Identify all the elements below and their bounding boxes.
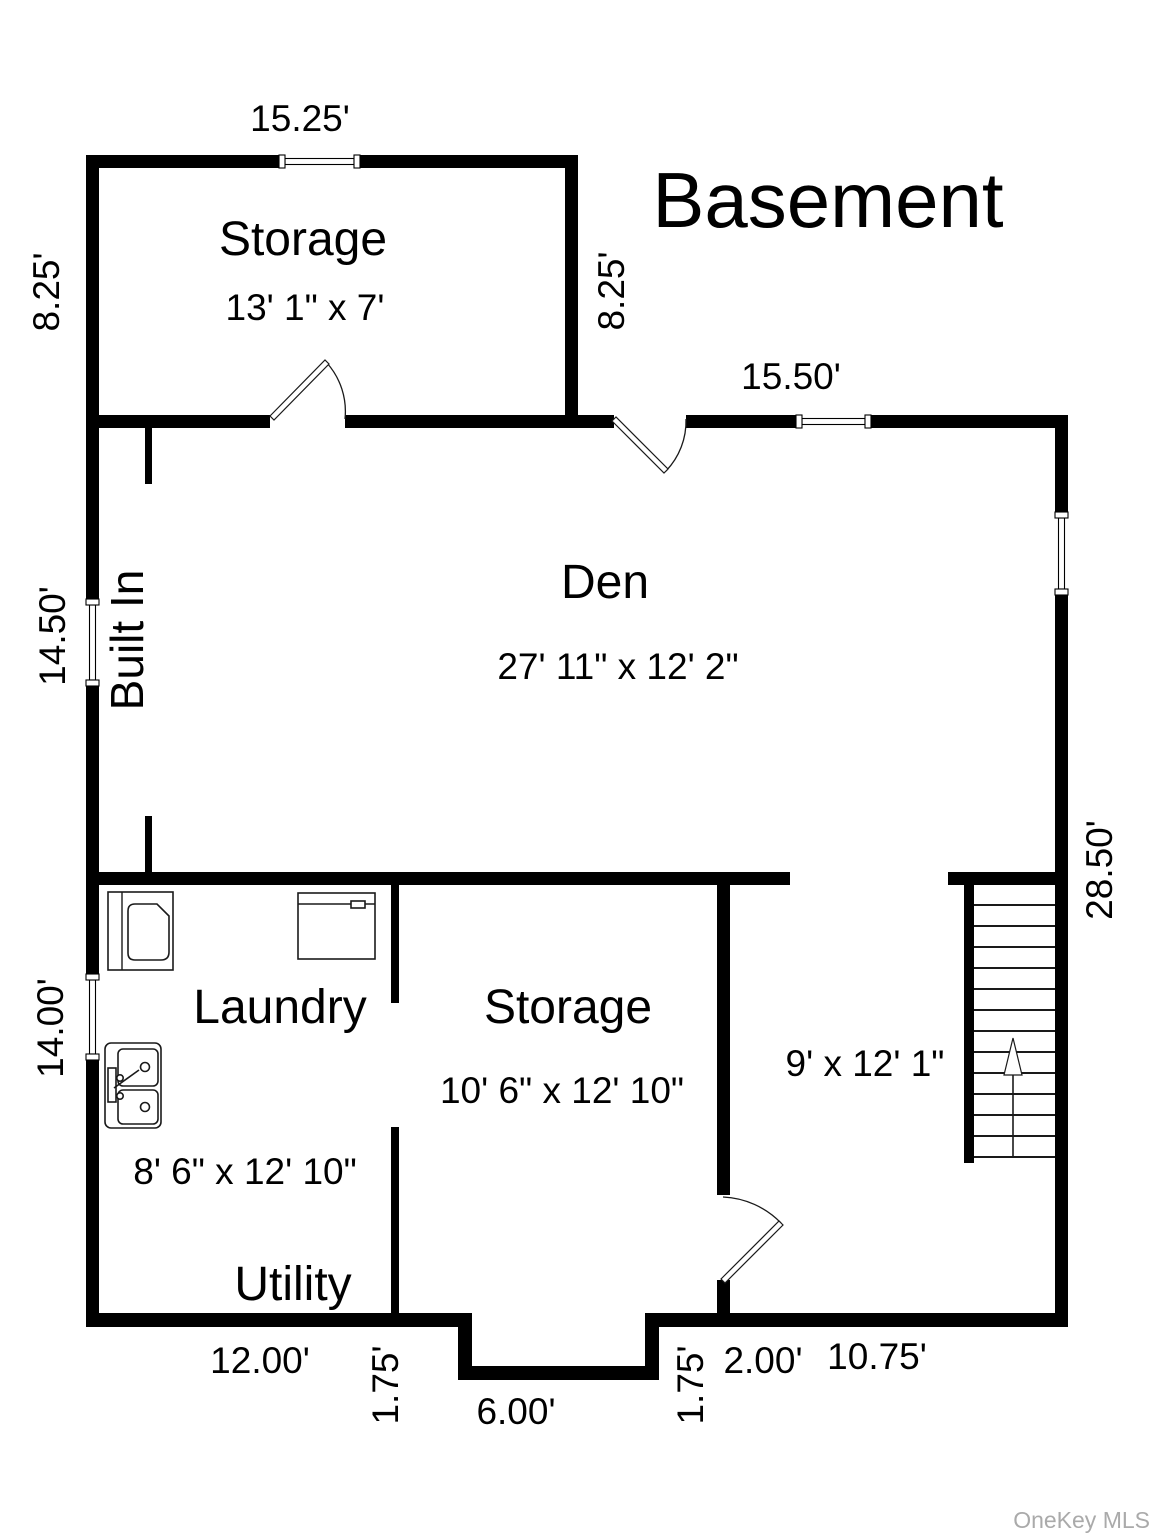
window-den-left [86,599,99,686]
built-in-stub-top [145,428,152,484]
watermark: OneKey MLS [1013,1507,1150,1533]
room-size-storage-top: 13' 1" x 7' [226,287,385,328]
dim-storage-height-left: 8.25' [26,252,67,331]
stairs-up-arrow-icon [1004,1038,1022,1157]
dim-storage-width: 15.25' [250,98,350,139]
dim-bottom-1075: 10.75' [827,1336,927,1377]
dim-laundry-height: 14.00' [30,978,71,1078]
room-size-den: 27' 11" x 12' 2" [497,646,738,687]
room-size-laundry: 8' 6" x 12' 10" [133,1151,356,1192]
sink-icon [105,1043,161,1128]
window-laundry-left [86,974,99,1060]
built-in-label: Built In [101,570,153,711]
room-label-den: Den [561,556,649,609]
dryer-icon [298,893,375,959]
room-label-storage-top: Storage [219,213,387,266]
floor-plan-page: Basement Storage 13' 1" x 7' Den 27' 11"… [0,0,1152,1536]
door-den [612,417,686,473]
window-right [1055,512,1068,595]
door-storage-top [270,360,345,420]
door-stairwell [721,1197,783,1283]
dim-bottom-12: 12.00' [210,1340,310,1381]
window-den-top [796,415,871,428]
dim-den-top: 15.50' [741,356,841,397]
room-label-storage-bottom: Storage [484,981,652,1034]
room-size-stairwell: 9' x 12' 1" [786,1043,945,1084]
floor-plan-svg: Basement Storage 13' 1" x 7' Den 27' 11"… [0,0,1152,1536]
dim-alcove-width: 6.00' [476,1391,555,1432]
room-label-utility: Utility [234,1258,351,1311]
stairs-rail [964,872,974,1163]
dim-storage-height-right: 8.25' [591,251,632,330]
room-label-laundry: Laundry [193,981,366,1034]
stairs [964,872,1055,1163]
dim-alcove-down: 1.75' [365,1345,406,1424]
plan-title: Basement [652,156,1004,244]
dim-den-left: 14.50' [32,586,73,686]
stairs-treads [974,905,1055,1157]
window-storage-top [279,155,360,168]
room-size-storage-bottom: 10' 6" x 12' 10" [440,1070,684,1111]
dim-right-height: 28.50' [1079,820,1120,920]
dim-bottom-2: 2.00' [723,1340,802,1381]
dim-alcove-up: 1.75' [670,1345,711,1424]
exterior-walls [86,155,1068,1380]
built-in-stub-bottom [145,816,152,872]
washer-icon [108,892,173,970]
